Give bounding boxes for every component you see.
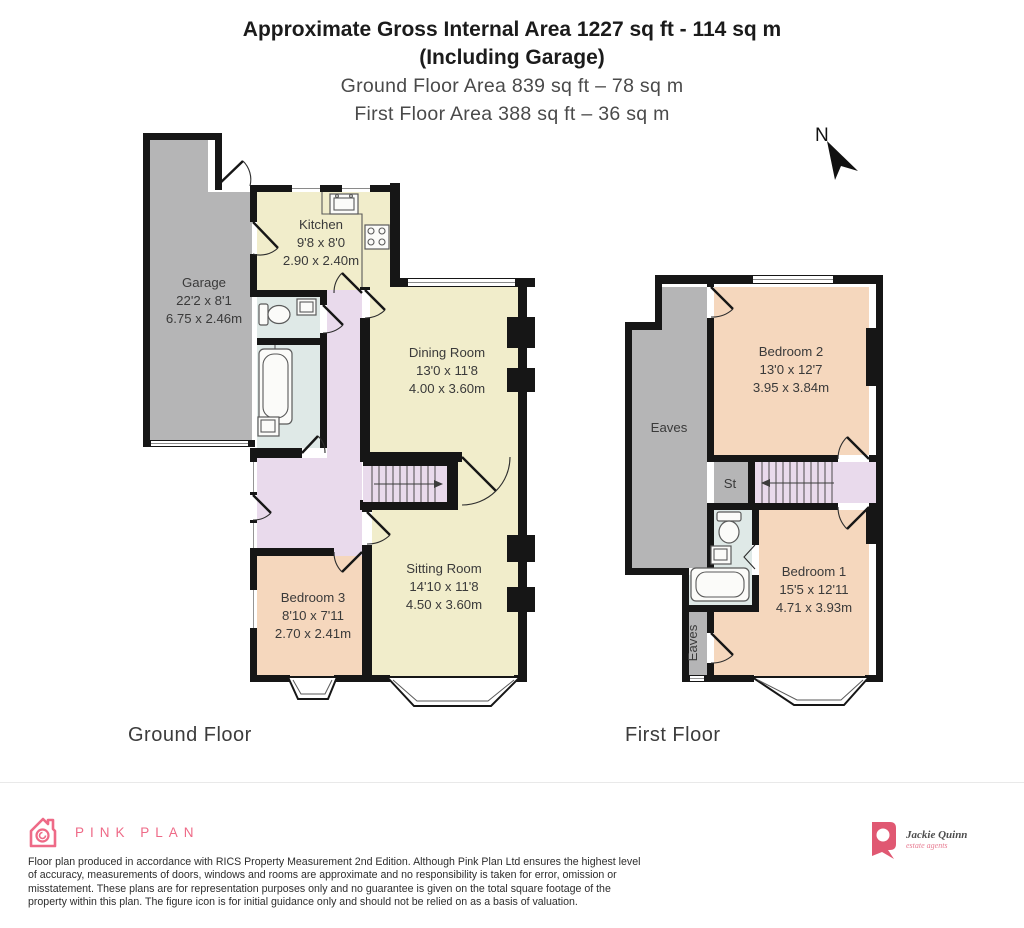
sitting-size-imperial: 14'10 x 11'8 [409,579,478,594]
bedroom1-label: Bedroom 1 [782,564,847,579]
footer-divider [0,782,1024,783]
pinkplan-house-icon [25,814,61,850]
garage-size-metric: 6.75 x 2.46m [166,311,242,326]
staircase-gf [363,460,458,508]
pinkplan-brand-label: PINK PLAN [75,825,200,840]
garage-label: Garage [182,275,226,290]
dining-size-imperial: 13'0 x 11'8 [416,363,478,378]
title-block: Approximate Gross Internal Area 1227 sq … [0,16,1024,128]
pinkplan-brand: PINK PLAN [25,814,200,850]
bedroom1-size-metric: 4.71 x 3.93m [776,600,852,615]
kitchen-label: Kitchen [299,217,343,232]
room-garage [150,140,252,440]
north-arrow-icon: N [800,115,890,195]
bay-window-ff [752,677,869,705]
bedroom2-size-metric: 3.95 x 3.84m [753,380,829,395]
hall-lower [257,458,362,556]
floorplan-page: Approximate Gross Internal Area 1227 sq … [0,0,1024,928]
bedroom3-label: Bedroom 3 [281,590,346,605]
ground-floor-caption: Ground Floor [128,724,252,747]
agent-logo: Jackie Quinn estate agents [868,822,967,862]
first-floor-plan: Bedroom 2 13'0 x 12'7 3.95 x 3.84m Bedro… [618,265,896,717]
title-line2: (Including Garage) [0,44,1024,72]
subtitle-ground-floor: Ground Floor Area 839 sq ft – 78 sq m [0,72,1024,100]
north-label: N [815,125,829,146]
dining-size-metric: 4.00 x 3.60m [409,381,485,396]
storage-label: St [724,476,737,491]
agent-q-icon [868,822,898,862]
bedroom2-size-imperial: 13'0 x 12'7 [760,362,823,377]
garage-size-imperial: 22'2 x 8'1 [176,293,232,308]
toilet-icon [259,304,290,325]
kitchen-size-imperial: 9'8 x 8'0 [297,235,345,250]
bay-windows [288,677,520,706]
bedroom3-size-metric: 2.70 x 2.41m [275,626,351,641]
toilet-ff-icon [717,512,741,543]
bedroom2-label: Bedroom 2 [759,344,824,359]
bath-icon [259,345,292,424]
sitting-size-metric: 4.50 x 3.60m [406,597,482,612]
bedroom1-size-imperial: 15'5 x 12'11 [779,582,848,597]
ground-floor-plan: Garage 22'2 x 8'1 6.75 x 2.46m Kitchen 9… [135,125,540,717]
bath-ff-icon [691,568,749,601]
dining-label: Dining Room [409,345,485,360]
bedroom3-size-imperial: 8'10 x 7'11 [282,608,344,623]
title-line1: Approximate Gross Internal Area 1227 sq … [0,16,1024,44]
eaves-large-label: Eaves [651,420,688,435]
sitting-label: Sitting Room [406,561,482,576]
kitchen-size-metric: 2.90 x 2.40m [283,253,359,268]
agent-name: Jackie Quinn [906,830,967,841]
disclaimer-text: Floor plan produced in accordance with R… [28,856,646,910]
agent-tagline: estate agents [906,841,967,851]
first-floor-caption: First Floor [625,724,721,747]
eaves-small-label: Eaves [685,624,700,661]
